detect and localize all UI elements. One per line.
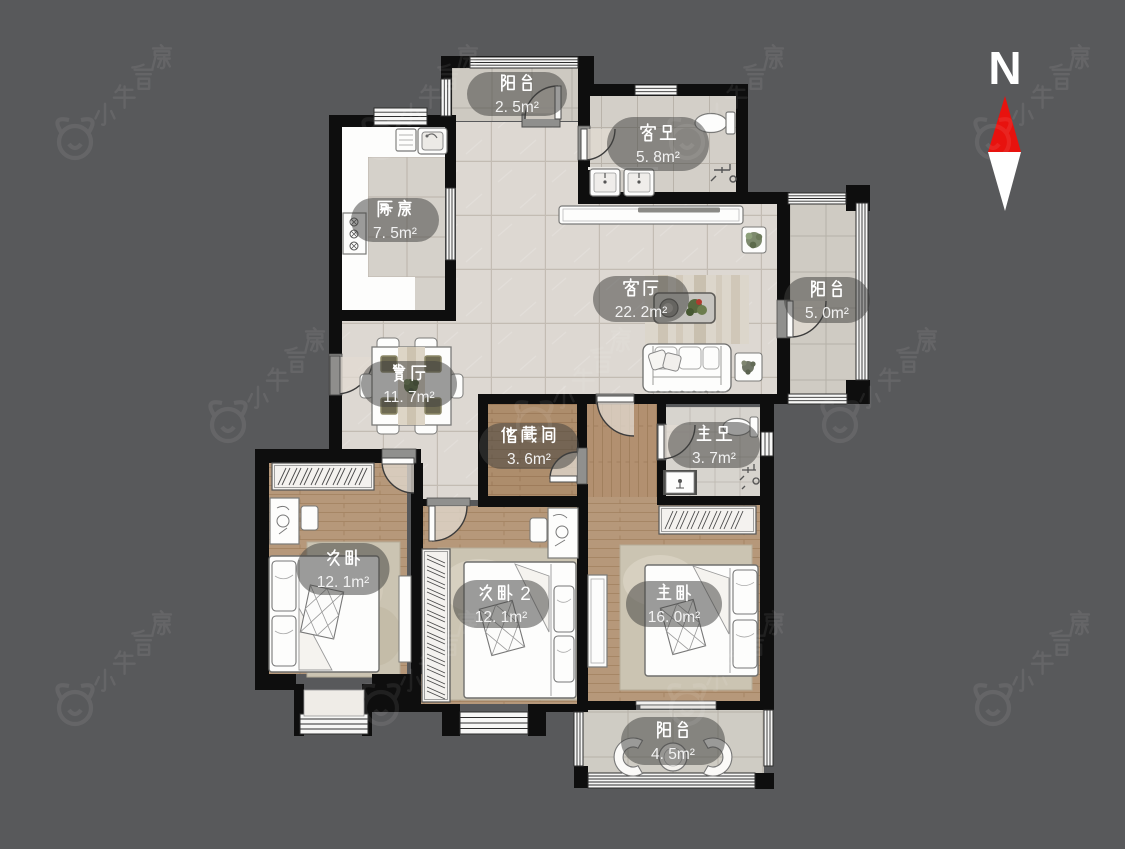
svg-text:16. 0m²: 16. 0m² — [648, 609, 701, 626]
svg-text:5. 0m²: 5. 0m² — [805, 305, 849, 322]
svg-text:11. 7m²: 11. 7m² — [383, 389, 434, 406]
svg-text:3. 6m²: 3. 6m² — [507, 451, 551, 468]
svg-text:2. 5m²: 2. 5m² — [495, 99, 539, 116]
svg-text:4. 5m²: 4. 5m² — [651, 746, 695, 763]
svg-text:12. 1m²: 12. 1m² — [475, 609, 528, 626]
svg-text:12. 1m²: 12. 1m² — [317, 574, 370, 591]
svg-text:22. 2m²: 22. 2m² — [615, 304, 668, 321]
svg-text:3. 7m²: 3. 7m² — [692, 450, 736, 467]
svg-text:2: 2 — [520, 584, 531, 605]
svg-text:N: N — [988, 42, 1021, 94]
svg-text:7. 5m²: 7. 5m² — [373, 225, 417, 242]
